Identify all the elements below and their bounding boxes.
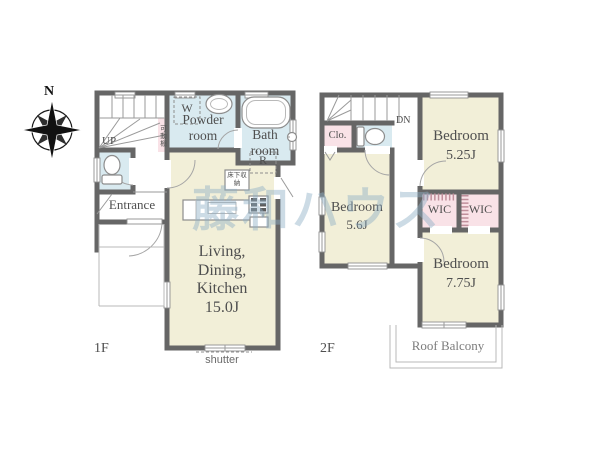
- bedroom-56-label: Bedroom 5.6J: [326, 199, 388, 233]
- ldk-line-kitchen: Kitchen: [177, 280, 267, 299]
- porch-outline: [99, 224, 164, 306]
- bedroom-525-size: 5.25J: [421, 147, 501, 165]
- refrigerator-label: R: [256, 154, 270, 168]
- wic-left-label: WIC: [423, 203, 456, 217]
- compass-north-label: N: [44, 84, 54, 100]
- powder-room-label: Powder room: [170, 112, 236, 143]
- wic-right-label: WIC: [463, 203, 498, 217]
- ldk-line-living: Living,: [177, 243, 267, 262]
- window: [205, 345, 245, 351]
- window: [422, 322, 466, 328]
- stove-icon: [249, 196, 268, 213]
- floor1-label: 1F: [94, 341, 109, 357]
- window: [164, 282, 170, 308]
- floor-plan-drawing: [0, 0, 600, 450]
- entrance-label: Entrance: [99, 198, 165, 213]
- window: [115, 92, 135, 98]
- bedroom-525-label: Bedroom 5.25J: [421, 127, 501, 165]
- window: [94, 158, 100, 182]
- closet-label: Clo.: [322, 130, 353, 142]
- window: [319, 232, 325, 252]
- ldk-label: Living, Dining, Kitchen 15.0J: [177, 243, 267, 318]
- toilet-icon-2f: [357, 127, 385, 146]
- sink-icon: [206, 95, 232, 114]
- stairs-up-label: UP: [102, 135, 116, 148]
- bedroom-775-label: Bedroom 7.75J: [421, 255, 501, 293]
- window: [348, 263, 387, 269]
- shutter-label: shutter: [192, 354, 252, 367]
- bedroom-56-name: Bedroom: [326, 199, 388, 217]
- floor2-label: 2F: [320, 341, 335, 357]
- bedroom-525-name: Bedroom: [421, 127, 501, 147]
- ldk-size: 15.0J: [177, 299, 267, 318]
- underfloor-storage-label: 床下収納: [226, 172, 248, 189]
- stairs-dn-label: DN: [396, 115, 410, 127]
- washer-label: W: [180, 102, 194, 116]
- roof-balcony-label: Roof Balcony: [394, 339, 502, 354]
- compass-rose: [22, 100, 82, 160]
- cupboard-box: [250, 217, 268, 227]
- window: [319, 197, 325, 215]
- toilet-icon-1f: [102, 156, 122, 185]
- bedroom-775-name: Bedroom: [421, 255, 501, 275]
- ldk-line-dining: Dining,: [177, 262, 267, 281]
- ldk-side-door-leaf: [281, 178, 293, 197]
- movable-shelf-label: 可動棚: [158, 119, 165, 153]
- window: [430, 92, 468, 98]
- floor-plan: 藤和ハウス N 1F UP Entrance Powder room Bath …: [0, 0, 600, 450]
- stairs-2f: [327, 95, 399, 123]
- bedroom-775-size: 7.75J: [421, 275, 501, 293]
- bedroom-56-size: 5.6J: [326, 217, 388, 233]
